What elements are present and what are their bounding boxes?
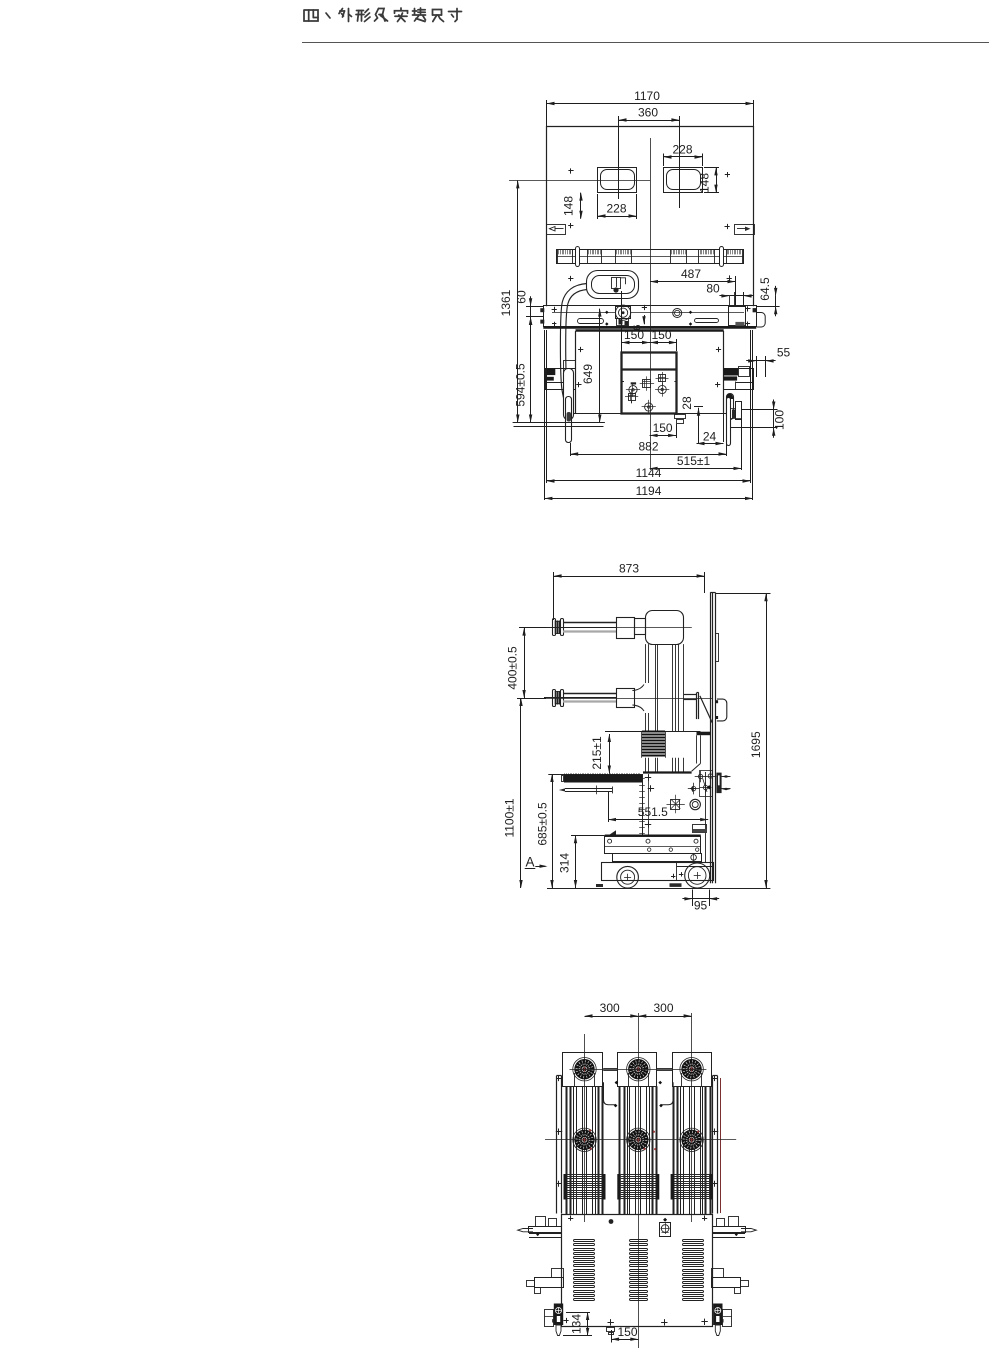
svg-text:215±1: 215±1	[590, 736, 604, 770]
svg-text:314: 314	[558, 853, 572, 873]
svg-text:649: 649	[581, 364, 595, 384]
svg-text:685±0.5: 685±0.5	[536, 802, 550, 846]
svg-text:515±1: 515±1	[677, 454, 711, 468]
svg-text:1170: 1170	[634, 89, 660, 103]
svg-text:134: 134	[570, 1314, 584, 1334]
svg-text:487: 487	[681, 267, 701, 281]
svg-text:594±0.5: 594±0.5	[514, 363, 528, 407]
svg-text:1361: 1361	[499, 289, 513, 316]
svg-text:882: 882	[638, 440, 658, 454]
svg-text:150: 150	[617, 1325, 637, 1339]
svg-text:150: 150	[653, 421, 673, 435]
svg-text:55: 55	[777, 346, 791, 360]
svg-text:148: 148	[698, 173, 712, 193]
svg-text:80: 80	[706, 282, 720, 296]
svg-text:1100±1: 1100±1	[503, 798, 517, 837]
svg-text:400±0.5: 400±0.5	[506, 646, 520, 690]
svg-text:300: 300	[653, 1001, 673, 1015]
svg-text:64.5: 64.5	[758, 277, 772, 301]
svg-text:100: 100	[773, 410, 787, 430]
svg-text:228: 228	[606, 202, 626, 216]
svg-text:551.5: 551.5	[638, 805, 668, 819]
svg-text:1194: 1194	[636, 484, 662, 498]
svg-text:1144: 1144	[636, 466, 662, 480]
svg-text:24: 24	[703, 430, 717, 444]
svg-text:28: 28	[680, 396, 694, 410]
svg-text:148: 148	[562, 196, 576, 216]
svg-text:228: 228	[672, 143, 692, 157]
svg-text:95: 95	[694, 899, 708, 913]
svg-text:360: 360	[638, 106, 658, 120]
svg-text:873: 873	[619, 562, 639, 576]
svg-text:A: A	[525, 855, 534, 870]
svg-text:1695: 1695	[749, 731, 763, 758]
svg-text:300: 300	[600, 1001, 620, 1015]
svg-text:60: 60	[515, 290, 529, 304]
